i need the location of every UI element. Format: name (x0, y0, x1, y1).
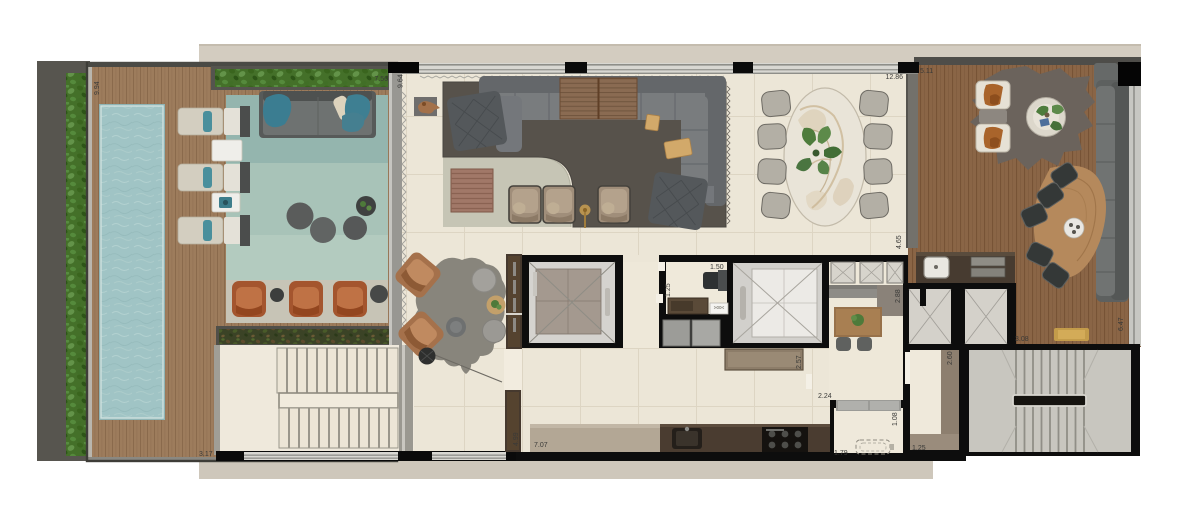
svg-text:1.79: 1.79 (834, 450, 848, 457)
svg-text:2.24: 2.24 (818, 393, 832, 400)
svg-text:1.25: 1.25 (912, 445, 926, 452)
svg-text:7.07: 7.07 (534, 442, 548, 449)
svg-text:2.57: 2.57 (796, 355, 803, 369)
svg-text:1.08: 1.08 (892, 412, 899, 426)
svg-text:4.99: 4.99 (513, 432, 520, 446)
svg-text:2.60: 2.60 (947, 351, 954, 365)
svg-text:4.65: 4.65 (896, 235, 903, 249)
svg-text:3.08: 3.08 (1015, 336, 1029, 343)
svg-text:7.56: 7.56 (374, 76, 388, 83)
svg-text:9.94: 9.94 (94, 81, 101, 95)
svg-text:6.47: 6.47 (1118, 317, 1125, 331)
svg-text:3.17: 3.17 (199, 451, 213, 458)
svg-text:9.64: 9.64 (398, 74, 405, 88)
svg-text:1.25: 1.25 (665, 283, 672, 297)
svg-text:2.88: 2.88 (895, 289, 902, 303)
svg-text:5.11: 5.11 (920, 68, 933, 75)
svg-text:1.50: 1.50 (710, 264, 724, 271)
svg-text:12.86: 12.86 (885, 74, 903, 81)
